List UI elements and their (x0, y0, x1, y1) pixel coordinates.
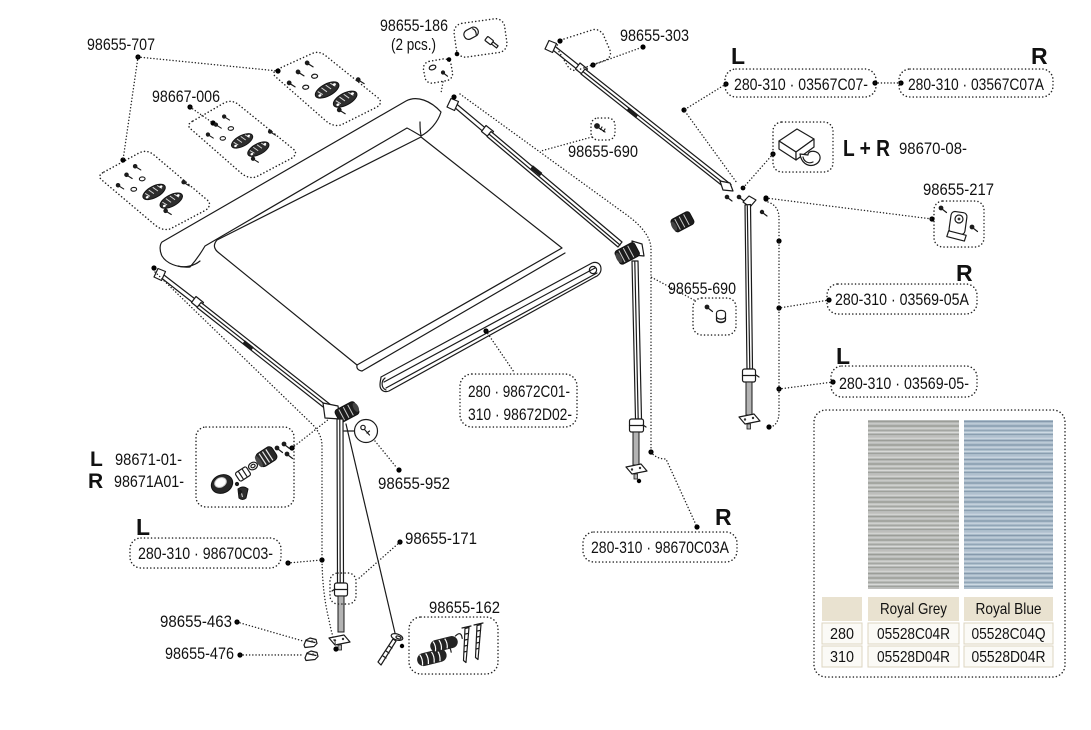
svg-text:L: L (90, 448, 103, 471)
svg-text:98655-707: 98655-707 (87, 35, 155, 54)
svg-text:280-310 · 03569-05A: 280-310 · 03569-05A (835, 290, 970, 309)
svg-text:98670-08-: 98670-08- (899, 139, 967, 158)
svg-text:05528C04R: 05528C04R (877, 626, 950, 643)
svg-text:05528D04R: 05528D04R (972, 649, 1046, 666)
svg-text:R: R (88, 470, 103, 493)
svg-text:98671-01-: 98671-01- (115, 450, 182, 469)
svg-text:98655-476: 98655-476 (165, 644, 234, 663)
svg-text:98655-303: 98655-303 (620, 26, 689, 45)
svg-text:98655-690: 98655-690 (568, 142, 638, 161)
svg-text:98655-162: 98655-162 (429, 598, 500, 617)
svg-text:280-310 · 98670C03-: 280-310 · 98670C03- (138, 544, 273, 563)
svg-text:L: L (836, 343, 850, 369)
svg-text:Royal Grey: Royal Grey (880, 601, 947, 618)
svg-text:L + R: L + R (843, 135, 890, 161)
svg-text:280-310 · 03569-05-: 280-310 · 03569-05- (839, 374, 969, 393)
svg-text:280 · 98672C01-: 280 · 98672C01- (468, 382, 570, 401)
svg-text:98655-690: 98655-690 (668, 279, 736, 298)
svg-text:98655-463: 98655-463 (160, 612, 232, 631)
svg-text:L: L (136, 514, 150, 540)
svg-text:05528D04R: 05528D04R (877, 649, 950, 666)
svg-text:R: R (1031, 43, 1048, 69)
svg-text:(2 pcs.): (2 pcs.) (391, 35, 436, 54)
svg-text:R: R (715, 504, 732, 530)
svg-text:310: 310 (830, 649, 854, 666)
svg-text:310 · 98672D02-: 310 · 98672D02- (468, 405, 572, 424)
svg-text:280-310 · 03567C07A: 280-310 · 03567C07A (908, 75, 1045, 94)
svg-text:280: 280 (830, 626, 854, 643)
svg-text:98655-186: 98655-186 (380, 16, 448, 35)
svg-text:98655-171: 98655-171 (405, 529, 477, 548)
svg-text:98655-217: 98655-217 (923, 180, 994, 199)
svg-text:Royal Blue: Royal Blue (976, 601, 1042, 618)
svg-text:98667-006: 98667-006 (152, 87, 220, 106)
svg-text:L: L (731, 43, 745, 69)
svg-text:280-310 · 98670C03A: 280-310 · 98670C03A (591, 538, 730, 557)
svg-text:R: R (956, 260, 973, 286)
svg-text:98671A01-: 98671A01- (114, 472, 184, 491)
svg-text:98655-952: 98655-952 (378, 474, 450, 493)
svg-text:05528C04Q: 05528C04Q (972, 626, 1046, 643)
svg-text:280-310 · 03567C07-: 280-310 · 03567C07- (734, 75, 868, 94)
